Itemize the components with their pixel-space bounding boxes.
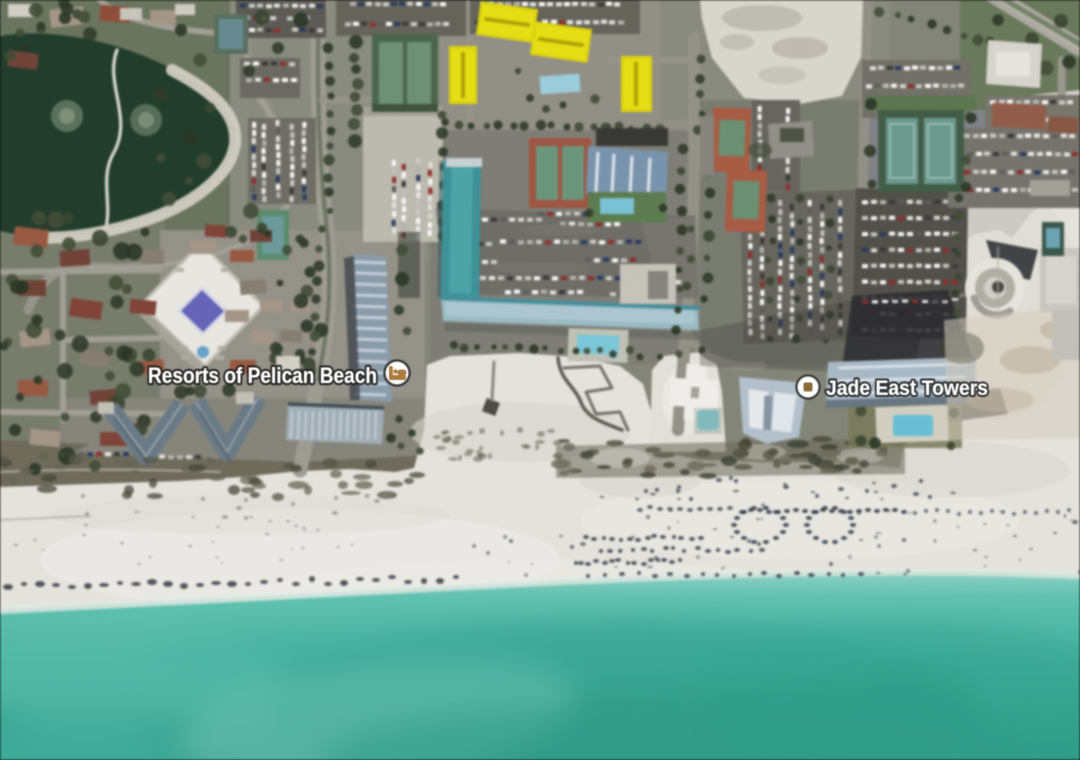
svg-text:Resorts of Pelican Beach: Resorts of Pelican Beach <box>148 363 377 388</box>
svg-text:Jade East Towers: Jade East Towers <box>826 377 988 400</box>
